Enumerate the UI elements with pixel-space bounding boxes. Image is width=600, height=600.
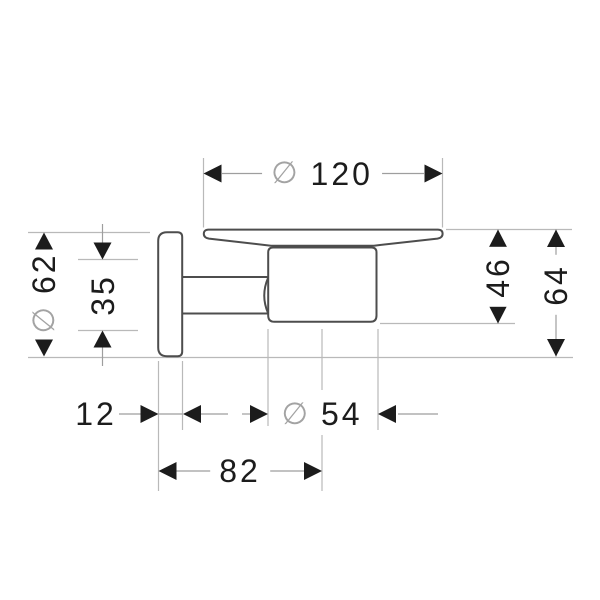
product-outline (158, 230, 442, 357)
dim-arrow-up-icon (35, 233, 53, 250)
dim-label-plate-diameter: ∅ 62 (28, 252, 60, 333)
diameter-symbol: ∅ (281, 399, 307, 429)
dim-value: 120 (311, 158, 373, 190)
dim-label-overall-height: 64 (538, 255, 574, 315)
dim-arrow-left-icon (183, 405, 201, 423)
dim-value: 62 (28, 252, 60, 294)
dim-value: 64 (540, 264, 572, 306)
dim-arrow-right-icon (250, 405, 268, 423)
dim-label-dish-diameter: ∅ 120 (262, 156, 382, 192)
dim-label-plate-inner: 35 (87, 274, 119, 316)
dim-arrow-right-icon (304, 462, 322, 480)
dim-label-plate-depth: 12 (75, 398, 117, 430)
dim-arrow-left-icon (378, 405, 396, 423)
dim-label-cup-diameter: ∅ 54 (281, 398, 362, 430)
dim-arrow-down-icon (547, 339, 565, 357)
dim-arrow-right-icon (141, 405, 159, 423)
dim-label-cup-drop-height: 46 (480, 247, 516, 307)
dim-label-overall-depth: 82 (210, 453, 270, 489)
diameter-symbol: ∅ (271, 158, 297, 188)
dim-arrow-down-icon (35, 340, 53, 357)
dim-value: 54 (321, 398, 363, 430)
diameter-symbol: ∅ (29, 307, 59, 333)
dim-arrow-down-icon (94, 243, 112, 260)
dim-arrow-right-icon (425, 165, 443, 183)
dim-arrow-up-icon (94, 331, 112, 348)
technical-drawing-canvas: ∅ 120 ∅ 62 35 46 64 12 ∅ 54 82 (0, 0, 600, 600)
dim-arrow-left-icon (204, 165, 222, 183)
dim-arrow-down-icon (489, 306, 507, 324)
dim-arrow-left-icon (159, 462, 177, 480)
dim-arrow-up-icon (547, 230, 565, 248)
dim-value: 35 (87, 274, 119, 316)
soap-dish (204, 230, 443, 246)
extension-lines (28, 158, 573, 491)
cup-body (268, 248, 376, 322)
dim-arrow-up-icon (489, 230, 507, 248)
dim-value: 46 (482, 256, 514, 298)
wall-plate (158, 232, 182, 356)
dim-value: 12 (75, 398, 117, 430)
dim-value: 82 (219, 455, 261, 487)
